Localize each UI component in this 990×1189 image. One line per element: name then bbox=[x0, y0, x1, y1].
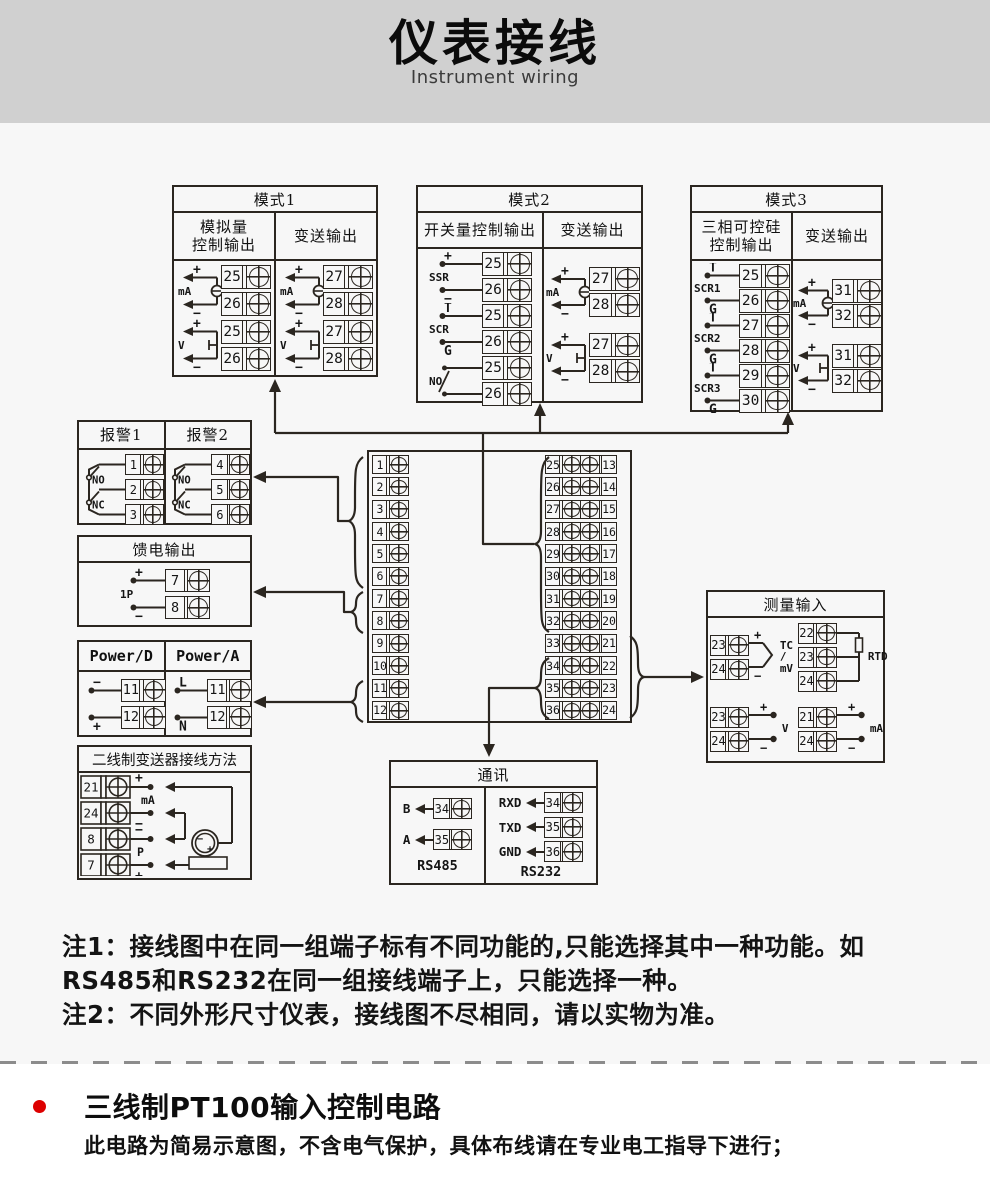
terminal-group: LN1112 bbox=[163, 677, 252, 731]
terminal-number: 28 bbox=[739, 339, 762, 363]
screw-icon bbox=[348, 265, 373, 289]
block-row-left: 1 bbox=[372, 455, 409, 474]
screw-icon bbox=[816, 647, 837, 668]
terminal-row: 26 bbox=[482, 329, 533, 355]
terminal: 11 bbox=[207, 679, 252, 702]
svg-text:SCR1: SCR1 bbox=[694, 282, 721, 295]
wire-glyph-vsrc: +−V bbox=[792, 343, 832, 393]
block-row-left: 10 bbox=[372, 656, 409, 675]
terminal: 2 bbox=[372, 477, 409, 496]
comm-column: B34A35RS485 bbox=[391, 788, 484, 883]
screw-icon bbox=[857, 304, 882, 328]
terminal-row: 11 bbox=[121, 677, 166, 704]
wire-glyph-dot: TGSCR1 bbox=[693, 263, 739, 313]
wire-glyph-src: +−mA bbox=[545, 266, 589, 318]
column-header: 变送输出 bbox=[544, 213, 641, 249]
connector-to-feed bbox=[259, 592, 351, 612]
terminal-number: 28 bbox=[323, 347, 346, 371]
svg-text:−: − bbox=[808, 318, 816, 329]
screw-icon bbox=[857, 279, 882, 303]
terminal: 11 bbox=[121, 679, 166, 702]
terminal-number: 31 bbox=[832, 279, 855, 303]
terminal: 8 bbox=[372, 611, 409, 630]
terminal: 7 bbox=[372, 589, 409, 608]
terminal: 23 bbox=[710, 707, 749, 728]
screw-icon bbox=[562, 455, 582, 474]
screw-icon bbox=[615, 267, 640, 291]
block-row-left: 7 bbox=[372, 589, 409, 608]
terminal-row: 25 bbox=[482, 251, 533, 277]
column-body: −+1112 bbox=[79, 672, 164, 735]
terminal-stack: 2728 bbox=[739, 313, 790, 363]
terminal: 27 bbox=[589, 267, 640, 291]
column-header: 变送输出 bbox=[276, 213, 376, 261]
terminal-number: 30 bbox=[739, 389, 762, 413]
terminal: 6 bbox=[372, 567, 409, 586]
terminal-group: TGSCR12526 bbox=[693, 263, 790, 313]
terminal-number: 27 bbox=[323, 320, 346, 344]
screw-icon bbox=[229, 679, 252, 702]
box-title: 模式2 bbox=[418, 187, 641, 213]
screw-icon bbox=[143, 706, 166, 729]
block-row-left: 5 bbox=[372, 544, 409, 563]
svg-text:8: 8 bbox=[87, 832, 95, 847]
screw-icon bbox=[246, 265, 271, 289]
terminal-group: +−mA3132 bbox=[792, 278, 883, 328]
screw-icon bbox=[229, 504, 250, 525]
screw-icon bbox=[765, 339, 790, 363]
terminal-group: +−V2526 bbox=[177, 318, 272, 372]
wire-glyph-dot: TGSCR bbox=[428, 303, 482, 355]
terminal-row: 23 bbox=[798, 645, 837, 669]
column-body: +−SSR2526TGSCR2526NO2526 bbox=[418, 249, 542, 401]
terminal: 3 bbox=[125, 504, 164, 525]
column-body: B34A35RS485 bbox=[391, 788, 484, 883]
terminal-group: +−SSR2526 bbox=[428, 251, 533, 303]
terminal-row: 28 bbox=[323, 291, 374, 318]
box-communication: 通讯B34A35RS485RXD34TXD35GND36RS232 bbox=[389, 760, 598, 885]
comm-signal-row: A35 bbox=[403, 828, 472, 852]
terminal-number: 11 bbox=[207, 679, 227, 702]
terminal: 29 bbox=[739, 364, 790, 388]
comm-signal-row: B34 bbox=[403, 797, 472, 821]
note-line-1: 注1：接线图中在同一组端子标有不同功能的,只能选择其中一种功能。如 bbox=[62, 930, 952, 964]
svg-text:+: + bbox=[135, 869, 143, 876]
screw-icon bbox=[765, 314, 790, 338]
screw-icon bbox=[562, 544, 582, 563]
input-type-label: mA bbox=[870, 723, 883, 735]
comm-signal-row: GND36 bbox=[499, 840, 583, 864]
terminal: 1 bbox=[125, 454, 164, 475]
screw-icon bbox=[580, 544, 600, 563]
svg-text:−: − bbox=[135, 823, 143, 838]
screw-icon bbox=[389, 589, 409, 608]
screw-icon bbox=[507, 382, 532, 406]
arrow-up-mode2-icon bbox=[534, 403, 546, 416]
terminal-number: 27 bbox=[589, 267, 612, 291]
screw-icon bbox=[562, 634, 582, 653]
terminal: 27 bbox=[739, 314, 790, 338]
screw-icon bbox=[580, 455, 600, 474]
svg-text:G: G bbox=[709, 403, 717, 414]
box-columns: Power/D−+1112Power/ALN1112 bbox=[79, 642, 250, 735]
terminal-number: 27 bbox=[589, 333, 612, 357]
box-title: 模式1 bbox=[174, 187, 376, 213]
terminal-number: 21 bbox=[601, 634, 617, 653]
terminal-number: 16 bbox=[601, 522, 617, 541]
terminal-row: 12 bbox=[207, 704, 252, 731]
terminal-number: 14 bbox=[601, 477, 617, 496]
box-column: 三相可控硅 控制输出TGSCR12526TGSCR22728TGSCR32930 bbox=[692, 213, 791, 410]
block-row-right: 3624 bbox=[545, 701, 617, 720]
terminal-number: 32 bbox=[832, 304, 855, 328]
svg-text:−: − bbox=[193, 306, 201, 318]
terminal: 24 bbox=[710, 659, 749, 680]
block-row-right: 2614 bbox=[545, 477, 617, 496]
terminal: 10 bbox=[372, 656, 409, 675]
terminal: 26 bbox=[482, 278, 533, 302]
screw-icon bbox=[507, 356, 532, 380]
screw-icon bbox=[187, 596, 210, 619]
wire-glyph-src: +−mA bbox=[177, 264, 221, 318]
wire-glyph-vsrc: +−V bbox=[177, 318, 221, 372]
svg-text:+: + bbox=[135, 567, 143, 581]
svg-text:+: + bbox=[295, 318, 303, 332]
signal-label: A bbox=[403, 832, 411, 847]
box-column: Power/ALN1112 bbox=[164, 642, 251, 735]
screw-icon bbox=[580, 679, 600, 698]
terminal: 35 bbox=[433, 829, 472, 850]
box-column: 报警2NONC456 bbox=[164, 422, 251, 523]
terminal-number: 13 bbox=[601, 455, 617, 474]
terminal-number: 20 bbox=[601, 611, 617, 630]
column-body: +−mA3132+−V3132 bbox=[793, 261, 881, 410]
terminal-number: 27 bbox=[323, 265, 346, 289]
terminal-row: 27 bbox=[589, 266, 640, 292]
svg-text:mA: mA bbox=[178, 285, 192, 298]
screw-icon bbox=[507, 278, 532, 302]
svg-text:G: G bbox=[709, 353, 717, 364]
column-header: 三相可控硅 控制输出 bbox=[692, 213, 791, 261]
block-row-right: 3119 bbox=[545, 589, 617, 608]
box-alarm: 报警1NONC123报警2NONC456 bbox=[77, 420, 252, 525]
arrow-left-icon bbox=[522, 791, 544, 815]
terminal-row: 27 bbox=[739, 313, 790, 338]
column-header: Power/A bbox=[166, 642, 251, 672]
block-row-right: 3321 bbox=[545, 634, 617, 653]
svg-text:SCR3: SCR3 bbox=[694, 382, 721, 395]
screw-icon bbox=[765, 289, 790, 313]
terminal-number: 25 bbox=[482, 304, 505, 328]
box-columns: +−1P78 bbox=[79, 563, 250, 625]
svg-text:NC: NC bbox=[92, 500, 105, 512]
terminal-row: 21 bbox=[798, 705, 837, 729]
box-column: +−1P78 bbox=[79, 563, 250, 625]
svg-text:V: V bbox=[793, 362, 800, 375]
terminal-group: +−mA2526 bbox=[177, 264, 272, 318]
wire-glyph-src: +−mA bbox=[792, 278, 832, 328]
svg-text:+: + bbox=[135, 773, 143, 786]
terminal-row: 12 bbox=[121, 704, 166, 731]
terminal: 28 bbox=[323, 292, 374, 316]
arrow-left-icon bbox=[411, 828, 433, 852]
terminal-group: 2324+−TC / mV bbox=[710, 631, 793, 683]
terminal-stack: 2324 bbox=[710, 633, 749, 681]
column-body: +−mA2728+−V2728 bbox=[544, 249, 641, 401]
column-body: +−1P78 bbox=[79, 563, 250, 625]
terminal-row: 27 bbox=[323, 264, 374, 291]
input-type-label: V bbox=[782, 723, 789, 735]
svg-text:G: G bbox=[444, 344, 452, 355]
terminal-stack: 2526 bbox=[739, 263, 790, 313]
svg-text:7: 7 bbox=[87, 858, 95, 873]
signal-label: RXD bbox=[499, 795, 522, 810]
screw-icon bbox=[615, 293, 640, 317]
column-header: 模拟量 控制输出 bbox=[174, 213, 274, 261]
block-row-right: 2513 bbox=[545, 455, 617, 474]
terminal-number: 26 bbox=[482, 330, 505, 354]
terminal-row: 30 bbox=[739, 388, 790, 413]
bottom-section-desc: 此电路为简易示意图，不含电气保护，具体布线请在专业电工指导下进行； bbox=[84, 1130, 794, 1160]
screw-icon bbox=[451, 829, 472, 850]
page-header: 仪表接线 Instrument wiring bbox=[0, 0, 990, 123]
box-power: Power/D−+1112Power/ALN1112 bbox=[77, 640, 252, 737]
svg-text:mA: mA bbox=[793, 297, 807, 310]
terminal-row: 28 bbox=[589, 358, 640, 384]
arrow-left-feed-icon bbox=[253, 586, 266, 598]
column-body: TGSCR12526TGSCR22728TGSCR32930 bbox=[692, 261, 791, 410]
terminal-stack: 1112 bbox=[121, 677, 166, 731]
terminal: 26 bbox=[482, 382, 533, 406]
page-title: 仪表接线 bbox=[0, 18, 990, 69]
screw-icon bbox=[580, 701, 600, 720]
column-header: 变送输出 bbox=[793, 213, 881, 261]
terminal: 32 bbox=[832, 304, 883, 328]
screw-icon bbox=[615, 333, 640, 357]
terminal-number: 26 bbox=[739, 289, 762, 313]
screw-icon bbox=[562, 611, 582, 630]
terminal-stack: 2526 bbox=[482, 303, 533, 355]
screw-icon bbox=[389, 500, 409, 519]
wire-glyph-dot: −+ bbox=[77, 677, 121, 731]
screw-icon bbox=[816, 623, 837, 644]
svg-text:+: + bbox=[808, 278, 816, 291]
screw-icon bbox=[143, 504, 164, 525]
box-column: 变送输出+−mA3132+−V3132 bbox=[791, 213, 881, 410]
screw-icon bbox=[143, 479, 164, 500]
screw-icon bbox=[580, 611, 600, 630]
svg-text:−: − bbox=[295, 306, 303, 318]
terminal: 24 bbox=[710, 731, 749, 752]
svg-text:mA: mA bbox=[280, 285, 294, 298]
svg-text:SCR: SCR bbox=[429, 323, 449, 336]
comm-signal-row: RXD34 bbox=[499, 791, 583, 815]
terminal-stack: 2930 bbox=[739, 363, 790, 413]
terminal-row: 8 bbox=[165, 594, 210, 621]
svg-text:+: + bbox=[93, 719, 101, 731]
terminal-stack: 2526 bbox=[482, 355, 533, 407]
terminal-stack: 2526 bbox=[221, 264, 272, 318]
column-header: 报警2 bbox=[166, 422, 251, 450]
terminal-row: 32 bbox=[832, 368, 883, 393]
terminal: 23 bbox=[798, 647, 837, 668]
terminal-group: 222324RTD bbox=[798, 621, 888, 693]
svg-text:24: 24 bbox=[83, 806, 98, 821]
terminal-stack: 78 bbox=[165, 567, 210, 621]
screw-icon bbox=[580, 500, 600, 519]
screw-icon bbox=[857, 369, 882, 393]
screw-icon bbox=[562, 589, 582, 608]
screw-icon bbox=[562, 500, 582, 519]
wire-glyph-mA: +− bbox=[837, 703, 869, 755]
wire-glyph-rtd bbox=[837, 621, 867, 693]
terminal-row: 27 bbox=[323, 318, 374, 345]
terminal-row: 25 bbox=[221, 318, 272, 345]
screw-icon bbox=[580, 522, 600, 541]
terminal-row: 28 bbox=[323, 345, 374, 372]
terminal: 34 bbox=[544, 792, 583, 813]
terminal-row: 1 bbox=[125, 452, 164, 477]
screw-icon bbox=[580, 656, 600, 675]
screw-icon bbox=[728, 659, 749, 680]
terminal-group: TGSCR32930 bbox=[693, 363, 790, 413]
terminal: 25 bbox=[482, 356, 533, 380]
screw-icon bbox=[728, 707, 749, 728]
terminal: 27 bbox=[589, 333, 640, 357]
screw-icon bbox=[562, 656, 582, 675]
box-column: 模拟量 控制输出+−mA2526+−V2526 bbox=[174, 213, 274, 375]
connector-to-alarm bbox=[259, 477, 349, 521]
terminal: 26 bbox=[221, 347, 272, 371]
wire-glyph-dot: TGSCR3 bbox=[693, 363, 739, 413]
box-column: 变送输出+−mA2728+−V2728 bbox=[274, 213, 376, 375]
screw-icon bbox=[229, 479, 250, 500]
block-row-left: 9 bbox=[372, 634, 409, 653]
screw-icon bbox=[816, 671, 837, 692]
screw-icon bbox=[389, 701, 409, 720]
terminal: 27 bbox=[323, 320, 374, 344]
svg-text:+: + bbox=[848, 703, 855, 714]
svg-text:SSR: SSR bbox=[429, 271, 449, 284]
column-body: LN1112 bbox=[166, 672, 251, 735]
arrow-left-icon bbox=[522, 840, 544, 864]
terminal-row: 23 bbox=[710, 633, 749, 657]
svg-text:mA: mA bbox=[141, 793, 155, 807]
terminal-stack: 2728 bbox=[323, 318, 374, 372]
wire-glyph-alarm: NONC bbox=[79, 452, 125, 527]
comm-column: RXD34TXD35GND36RS232 bbox=[484, 788, 596, 883]
screw-icon bbox=[389, 567, 409, 586]
screw-icon bbox=[389, 455, 409, 474]
terminal-group: −+1112 bbox=[77, 677, 166, 731]
block-row-left: 4 bbox=[372, 522, 409, 541]
terminal-stack: 2124 bbox=[798, 705, 837, 753]
terminal-row: 28 bbox=[739, 338, 790, 363]
comm-standard-label: RS232 bbox=[521, 864, 562, 880]
screw-icon bbox=[187, 569, 210, 592]
screw-icon bbox=[143, 679, 166, 702]
svg-text:−: − bbox=[808, 383, 816, 394]
terminal-stack: 2526 bbox=[482, 251, 533, 303]
box-columns: B34A35RS485RXD34TXD35GND36RS232 bbox=[391, 788, 596, 883]
column-body: RXD34TXD35GND36RS232 bbox=[486, 788, 596, 883]
signal-label: TXD bbox=[499, 820, 522, 835]
svg-text:+: + bbox=[561, 332, 569, 345]
arrow-left-icon bbox=[522, 815, 544, 839]
block-row-right: 3018 bbox=[545, 567, 617, 586]
terminal-row: 25 bbox=[482, 355, 533, 381]
screw-icon bbox=[389, 656, 409, 675]
column-body: +−mA2728+−V2728 bbox=[276, 261, 376, 375]
terminal-number: 26 bbox=[221, 292, 244, 316]
terminal-number: 32 bbox=[832, 369, 855, 393]
bottom-section-title: 三线制PT100输入控制电路 bbox=[84, 1086, 441, 1126]
terminal: 26 bbox=[739, 289, 790, 313]
wire-glyph-dot: LN bbox=[163, 677, 207, 731]
block-row-left: 8 bbox=[372, 611, 409, 630]
terminal: 25 bbox=[482, 304, 533, 328]
terminal: 11 bbox=[372, 679, 409, 698]
terminal-number: 25 bbox=[221, 265, 244, 289]
box-column: 开关量控制输出+−SSR2526TGSCR2526NO2526 bbox=[418, 213, 542, 401]
svg-text:T: T bbox=[444, 303, 452, 316]
screw-icon bbox=[246, 320, 271, 344]
wire-glyph-vsrc: +−V bbox=[545, 332, 589, 384]
terminal-row: 6 bbox=[211, 502, 250, 527]
screw-icon bbox=[389, 611, 409, 630]
svg-text:T: T bbox=[709, 363, 717, 376]
terminal-number: 7 bbox=[165, 569, 185, 592]
terminal-group: NONC123 bbox=[79, 452, 164, 527]
input-type-label: RTD bbox=[868, 651, 888, 663]
screw-icon bbox=[507, 252, 532, 276]
terminal: 27 bbox=[323, 265, 374, 289]
screw-icon bbox=[580, 634, 600, 653]
column-body: +−mA2526+−V2526 bbox=[174, 261, 274, 375]
screw-icon bbox=[451, 798, 472, 819]
terminal: 12 bbox=[372, 701, 409, 720]
svg-text:1P: 1P bbox=[120, 588, 134, 601]
terminal: 8 bbox=[165, 596, 210, 619]
screw-icon bbox=[728, 635, 749, 656]
terminal-group: TGSCR22728 bbox=[693, 313, 790, 363]
terminal-number: 12 bbox=[207, 706, 227, 729]
screw-icon bbox=[816, 707, 837, 728]
terminal: 24 bbox=[798, 731, 837, 752]
svg-text:N: N bbox=[179, 719, 187, 731]
terminal: 4 bbox=[211, 454, 250, 475]
terminal-group: TGSCR2526 bbox=[428, 303, 533, 355]
wire-glyph-dot: +−1P bbox=[119, 567, 165, 621]
wire-glyph-alarm: NONC bbox=[165, 452, 211, 527]
terminal: 28 bbox=[589, 359, 640, 383]
column-header: 报警1 bbox=[79, 422, 164, 450]
box-title: 二线制变送器接线方法 bbox=[79, 747, 250, 773]
svg-text:+: + bbox=[444, 251, 452, 264]
terminal-row: 3 bbox=[125, 502, 164, 527]
screw-icon bbox=[507, 304, 532, 328]
screw-icon bbox=[229, 454, 250, 475]
screw-icon bbox=[580, 567, 600, 586]
svg-text:−: − bbox=[197, 834, 203, 845]
screw-icon bbox=[562, 522, 582, 541]
block-row-left: 2 bbox=[372, 477, 409, 496]
terminal: 28 bbox=[323, 347, 374, 371]
screw-icon bbox=[246, 347, 271, 371]
terminal-group: NO2526 bbox=[428, 355, 533, 407]
terminal-row: 29 bbox=[739, 363, 790, 388]
wire-glyph-dot: +−SSR bbox=[428, 251, 482, 303]
